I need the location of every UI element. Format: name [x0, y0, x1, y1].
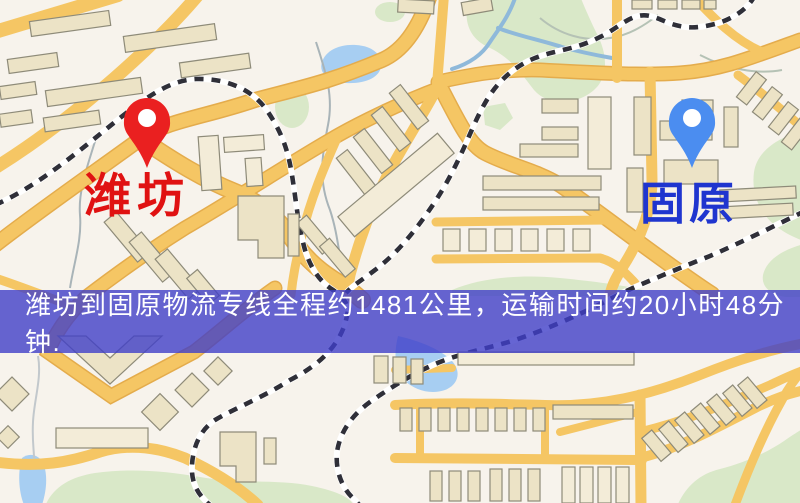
map-canvas[interactable]: 潍坊 固原 潍坊到固原物流专线全程约1481公里，运输时间约20小时48分钟.	[0, 0, 800, 503]
destination-city-label: 固原	[640, 181, 738, 226]
destination-pin-shape	[669, 98, 715, 168]
destination-pin-hole	[683, 109, 701, 127]
route-info-text: 潍坊到固原物流专线全程约1481公里，运输时间约20小时48分钟.	[0, 285, 800, 359]
destination-pin[interactable]	[669, 98, 715, 168]
origin-pin-hole	[138, 109, 156, 127]
route-info-banner: 潍坊到固原物流专线全程约1481公里，运输时间约20小时48分钟.	[0, 290, 800, 353]
base-map	[0, 0, 800, 503]
origin-city-label: 潍坊	[84, 172, 190, 219]
